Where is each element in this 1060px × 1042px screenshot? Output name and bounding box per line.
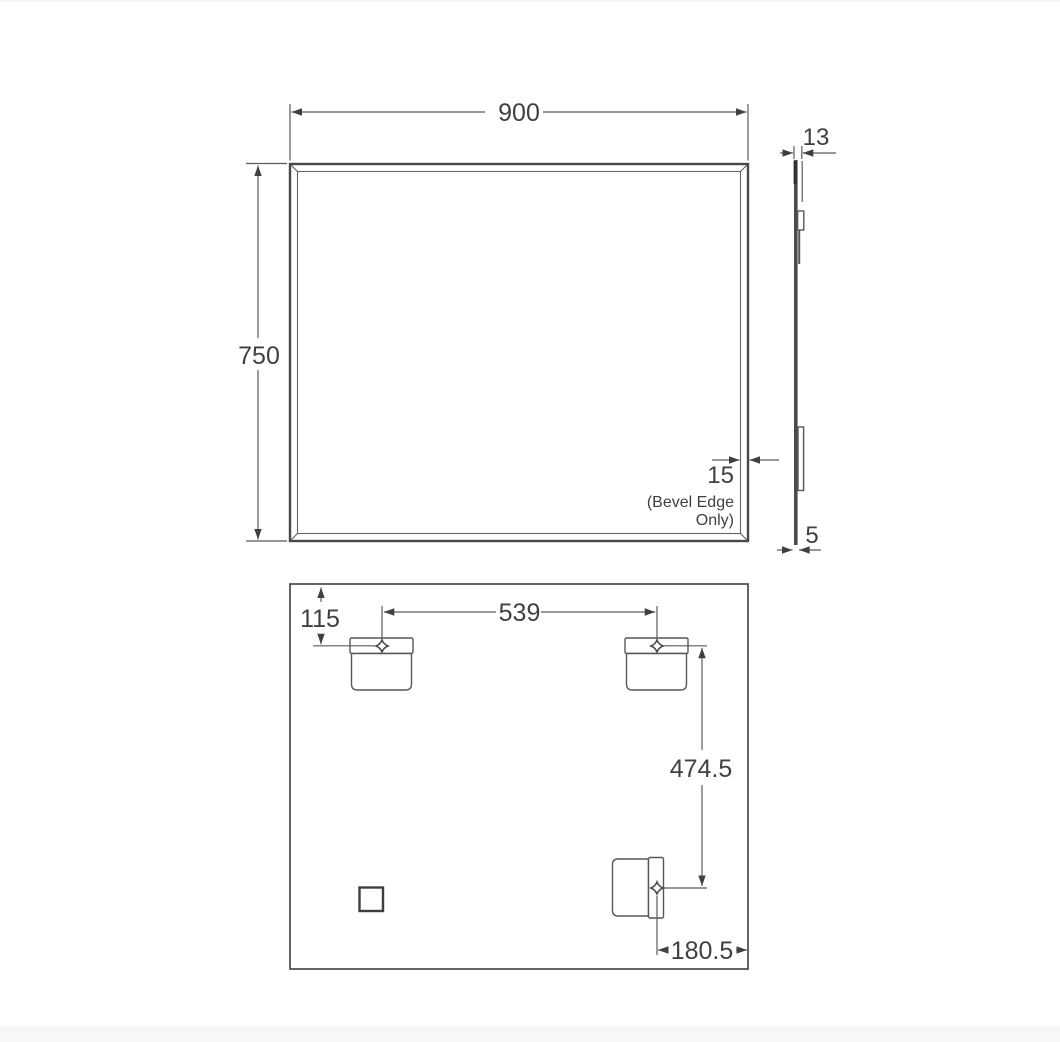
dimension-label-side-offset: 180.5	[671, 937, 734, 965]
dimension-front-height: 750	[238, 164, 287, 542]
bevel-note-line2: Only)	[696, 512, 734, 529]
dimension-label-width: 900	[498, 99, 540, 127]
dimension-label-depth: 13	[803, 124, 830, 151]
dimension-label-thickness: 5	[805, 522, 818, 549]
dimension-label-top-offset: 115	[300, 605, 340, 633]
mirror-outer-edge	[290, 164, 748, 541]
front-view	[290, 164, 748, 541]
mirror-dimension-diagram: 900 750 15 (Bevel Edge Only)	[0, 0, 1060, 1042]
bracket-body	[352, 654, 412, 691]
top-bracket-profile	[798, 211, 804, 230]
bevel-note-line1: (Bevel Edge	[647, 494, 734, 511]
technical-drawing-page: 900 750 15 (Bevel Edge Only)	[0, 0, 1060, 1042]
junction-box	[360, 888, 384, 912]
bracket-body	[613, 859, 649, 916]
page-bottom-band	[0, 1026, 1060, 1042]
dimension-glass-thickness: 5	[777, 522, 821, 550]
glass-profile-top-cap	[794, 161, 797, 184]
side-view	[794, 160, 804, 545]
dimension-label-height: 750	[238, 342, 280, 370]
dimension-label-bevel: 15	[707, 462, 734, 489]
dimension-label-spacing: 539	[499, 599, 541, 627]
dimension-side-depth: 13	[780, 124, 836, 159]
dimension-label-vertical-offset: 474.5	[670, 755, 733, 783]
bottom-bracket-profile	[798, 427, 804, 491]
dimension-front-width: 900	[290, 99, 748, 161]
